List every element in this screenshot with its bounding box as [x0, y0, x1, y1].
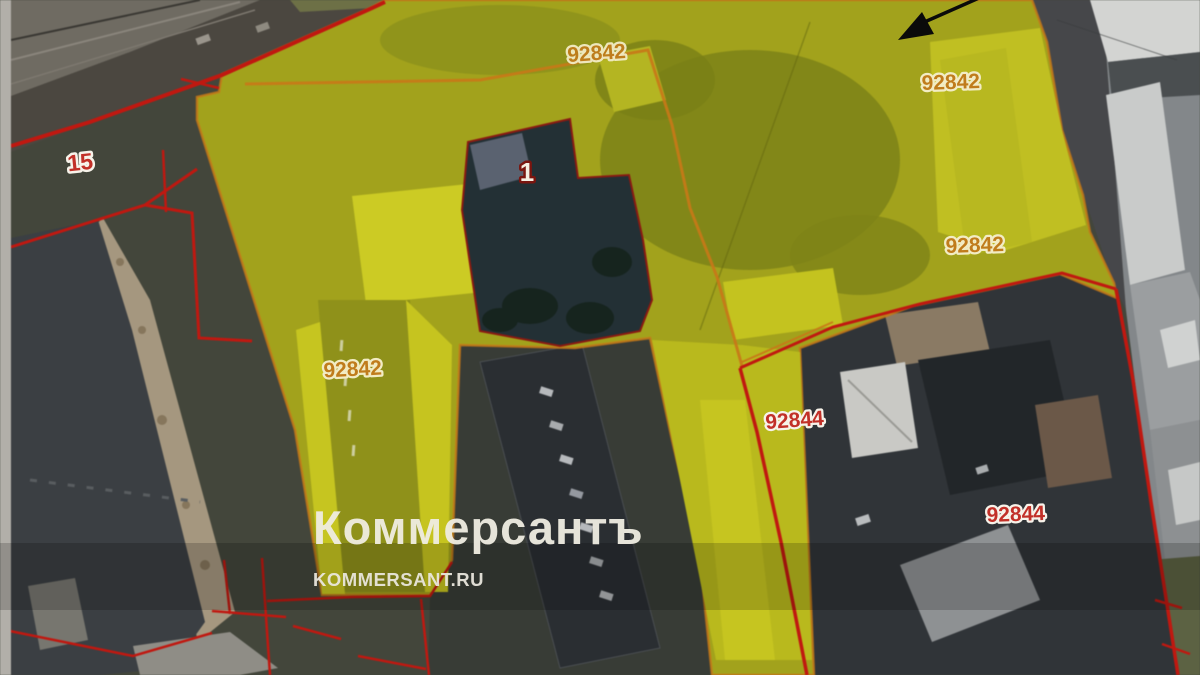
label-parcel-1: 1	[520, 157, 534, 187]
cadastral-map: 15 1 92842 92842 92842 92842 92844 92844…	[0, 0, 1200, 675]
label-quarter-92842-top: 92842	[567, 40, 627, 67]
label-quarter-92842-left: 92842	[323, 356, 383, 382]
label-parcel-15: 15	[66, 148, 94, 177]
label-parcel-92844-lower: 92844	[986, 502, 1045, 527]
article-image: 15 1 92842 92842 92842 92842 92844 92844…	[0, 0, 1200, 675]
label-quarter-92842-top-right: 92842	[921, 70, 980, 95]
label-quarter-92842-right: 92842	[945, 233, 1004, 258]
label-parcel-92844-upper: 92844	[765, 407, 825, 434]
watermark-brand: Коммерсантъ	[313, 501, 644, 554]
watermark-site: KOMMERSANT.RU	[313, 569, 484, 590]
